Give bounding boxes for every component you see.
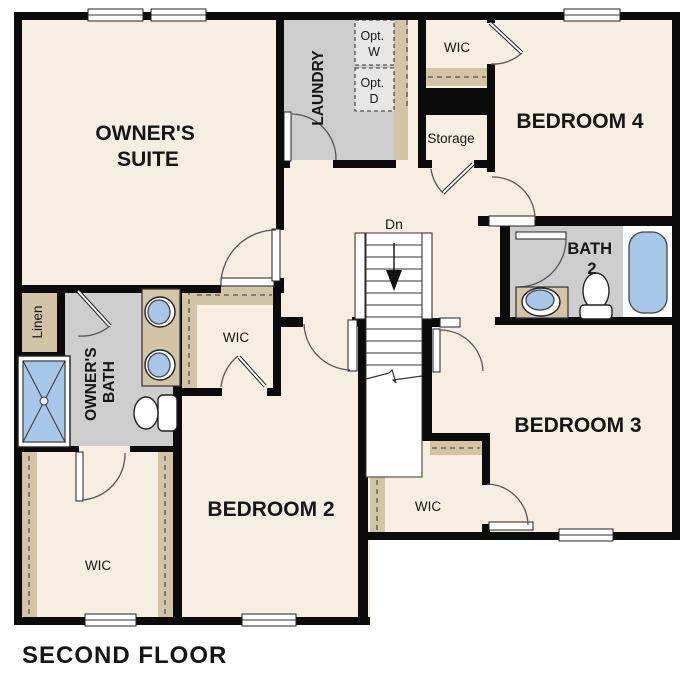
owners-suite-door-threshold <box>221 278 274 286</box>
window <box>88 9 143 21</box>
bedroom2-label: BEDROOM 2 <box>207 498 334 521</box>
bathtub <box>629 232 667 313</box>
window <box>559 529 613 541</box>
plan-title: SECOND FLOOR <box>22 642 227 669</box>
bedroom4-door-threshold <box>489 216 535 226</box>
staircase <box>355 233 432 477</box>
window <box>242 614 296 626</box>
bedroom3-label: BEDROOM 3 <box>514 414 641 437</box>
bedroom2-door-leaf <box>348 320 357 371</box>
wic-middle-door-leaf <box>489 522 533 530</box>
shower <box>18 356 70 447</box>
owners-vanity <box>142 289 180 386</box>
bedroom3-door-leaf <box>433 329 440 372</box>
window <box>85 614 136 626</box>
owners-suite-door-leaf <box>272 229 280 281</box>
hall-cased-opening <box>440 318 460 327</box>
bath2-vanity <box>516 287 568 318</box>
bedroom4-label: BEDROOM 4 <box>516 110 644 133</box>
owners-wic-label: WIC <box>223 330 249 345</box>
window <box>564 9 620 21</box>
wic-middle-rod-left <box>370 477 385 532</box>
bath2-door-leaf <box>516 232 566 239</box>
wic-bottom-label: WIC <box>85 558 111 573</box>
wic-middle-rod-top <box>430 441 482 455</box>
linen-label: Linen <box>30 305 45 338</box>
stair-rail-right <box>422 233 432 319</box>
shower-drain <box>40 397 48 405</box>
stairs-down-label: Dn <box>385 216 403 232</box>
stair-rail-left <box>355 233 365 319</box>
laundry-door-leaf <box>284 112 291 161</box>
wic-middle-label: WIC <box>415 499 441 514</box>
laundry-label: LAUNDRY <box>310 50 327 126</box>
window <box>151 9 206 21</box>
wic-top-label: WIC <box>444 40 470 55</box>
storage-label: Storage <box>427 131 474 146</box>
wic-bottom-door-leaf <box>76 452 83 501</box>
floor-plan-page: OWNER'S SUITE LAUNDRY Opt. W Opt. D WIC … <box>0 0 687 687</box>
floor-plan-svg: OWNER'S SUITE LAUNDRY Opt. W Opt. D WIC … <box>0 0 687 687</box>
laundry-shelf <box>394 20 408 160</box>
